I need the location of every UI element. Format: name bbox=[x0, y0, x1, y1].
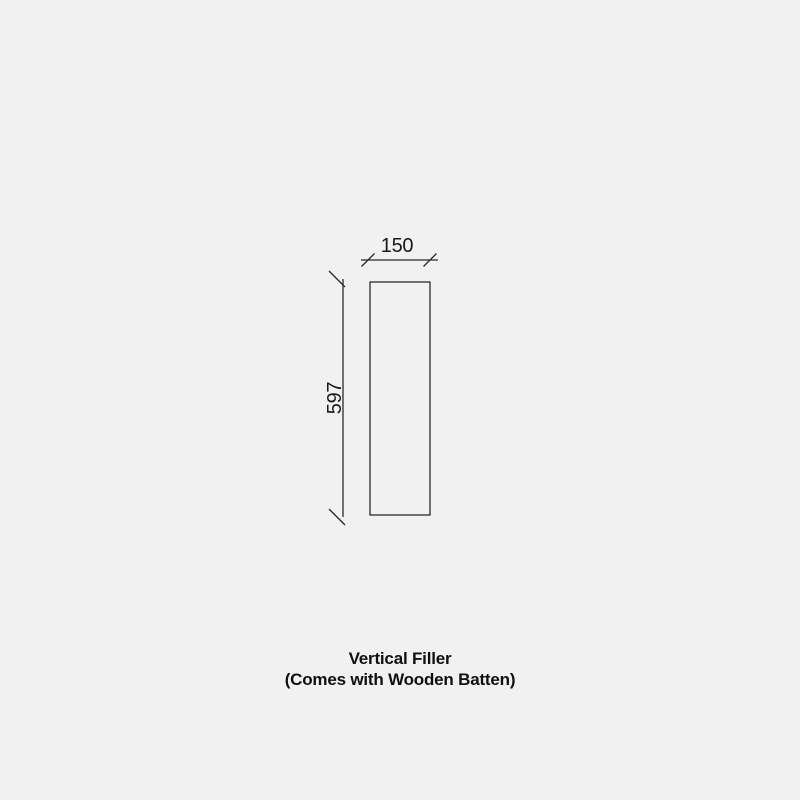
caption: Vertical Filler (Comes with Wooden Batte… bbox=[0, 648, 800, 690]
caption-title: Vertical Filler bbox=[0, 648, 800, 669]
width-dimension-label: 150 bbox=[381, 235, 414, 257]
height-dimension-label: 597 bbox=[324, 382, 346, 415]
drawing-stage: 150 597 Vertical Filler (Comes with Wood… bbox=[0, 0, 800, 800]
caption-subtitle: (Comes with Wooden Batten) bbox=[0, 669, 800, 690]
filler-panel-outline bbox=[370, 282, 430, 515]
